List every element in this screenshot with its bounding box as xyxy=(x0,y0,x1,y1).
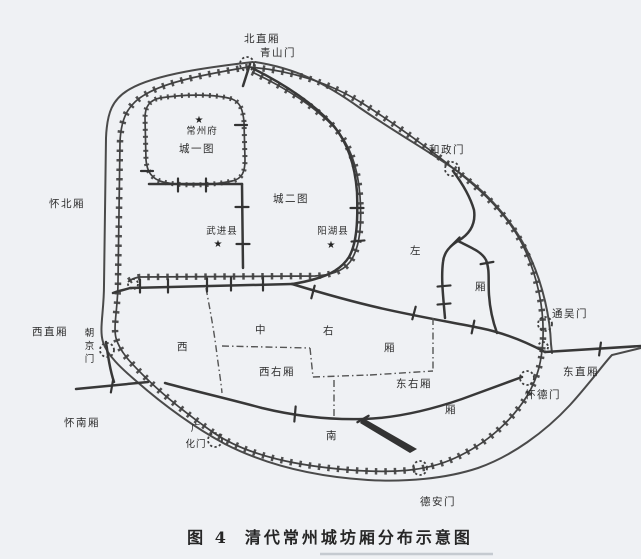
canal-west-exit xyxy=(113,288,130,293)
label-ward-zhong-xiang: 厢 xyxy=(384,342,396,354)
label-ward-zuo-xiang: 厢 xyxy=(475,281,487,293)
label-gate-deanmen: 德安门 xyxy=(420,495,456,508)
main-canal-west xyxy=(130,284,292,288)
moat-line-northeast xyxy=(255,62,552,353)
label-ward-huaibeixiang: 怀北厢 xyxy=(49,198,85,210)
label-ward-dongyouxiang: 东右厢 xyxy=(396,377,432,390)
label-ward-beizhixiang: 北直厢 xyxy=(244,32,280,45)
label-chengyitu: 城一图 xyxy=(179,143,215,155)
label-changzhoufu: 常州府 xyxy=(186,125,218,137)
label-ward-dongzhixiang: 东直厢 xyxy=(563,365,599,378)
chaojing-gate-road xyxy=(106,342,114,382)
label-ward-zuo: 左 xyxy=(410,244,422,257)
label-gate-huaidemen: 怀德门 xyxy=(525,388,561,401)
label-yanghuxian: 阳湖县 xyxy=(317,226,349,237)
label-wujinxian: 武进县 xyxy=(206,225,238,237)
label-ward-xi: 西 xyxy=(177,341,189,353)
river-wedge xyxy=(360,418,417,453)
citadel-wall xyxy=(145,95,245,185)
label-ward-huainanxiang: 怀南厢 xyxy=(64,416,100,429)
label-ward-zhong: 中 xyxy=(255,323,267,336)
northeast-inner-road xyxy=(252,68,357,284)
label-gate-guanghuamen-line2: 化门 xyxy=(185,438,206,450)
scanned-map-page: ★ ★ ★ 北直厢 青山门 和政门 怀北厢 西直厢 怀南厢 通吴门 东直厢 怀德… xyxy=(0,0,641,559)
label-gate-hezhengmen: 和政门 xyxy=(429,143,465,156)
figure-caption: 图 4清代常州城坊厢分布示意图 xyxy=(187,528,473,547)
star-changzhoufu: ★ xyxy=(195,115,204,126)
ward-boundaries xyxy=(206,288,433,418)
label-gate-tongwumen: 通吴门 xyxy=(552,307,588,320)
label-gate-qingshanmen: 青山门 xyxy=(260,46,296,59)
left-ward-road xyxy=(442,171,474,318)
map-canvas: ★ ★ ★ 北直厢 青山门 和政门 怀北厢 西直厢 怀南厢 通吴门 东直厢 怀德… xyxy=(0,0,641,559)
label-chengertu: 城二图 xyxy=(273,193,309,205)
label-ward-xizhixiang: 西直厢 xyxy=(32,325,68,338)
label-ward-xiyouxiang: 西右厢 xyxy=(259,365,295,378)
main-canal-southeast xyxy=(292,284,545,352)
outer-city-wall xyxy=(115,67,543,471)
label-ward-nan-xiang: 厢 xyxy=(445,404,457,416)
label-gate-chaojingmen: 朝京门 xyxy=(85,328,96,365)
label-ward-nan: 南 xyxy=(326,429,338,442)
label-ward-you: 右 xyxy=(323,324,335,337)
star-yanghu: ★ xyxy=(327,240,336,251)
star-wujin: ★ xyxy=(214,239,223,250)
citadel-east-road xyxy=(242,184,243,268)
label-gate-guanghuamen-line1: 广 xyxy=(191,422,202,434)
south-inner-road xyxy=(165,377,522,419)
